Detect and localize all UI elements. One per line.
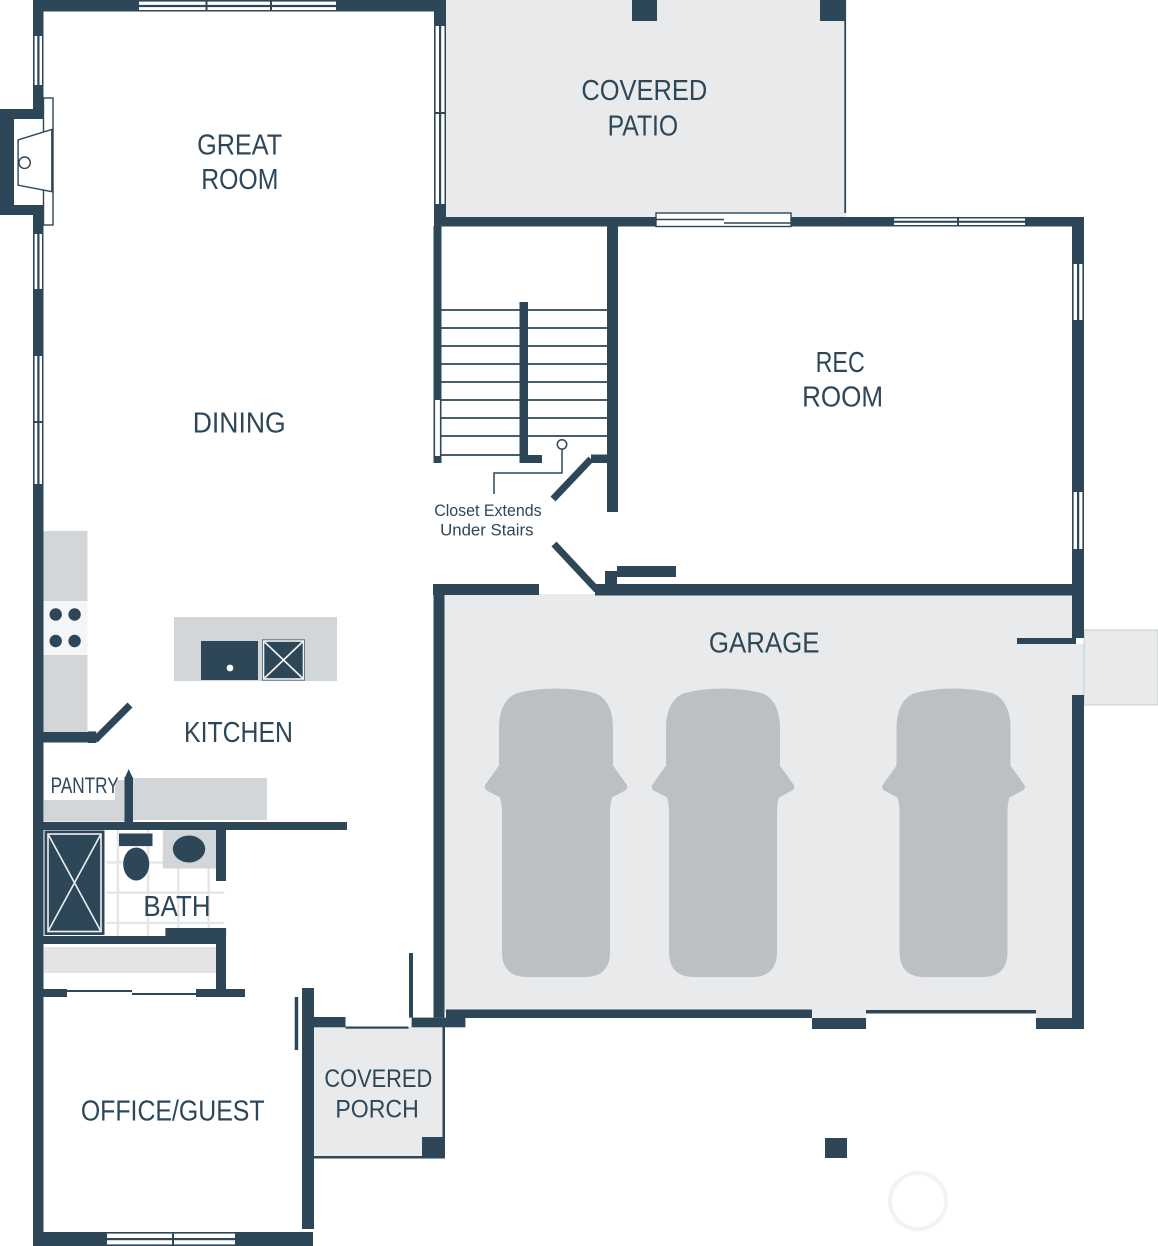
svg-text:ROOM: ROOM xyxy=(802,381,883,413)
svg-text:DINING: DINING xyxy=(193,408,286,440)
svg-text:GARAGE: GARAGE xyxy=(709,628,820,660)
svg-text:COVERED: COVERED xyxy=(324,1065,432,1093)
svg-text:KITCHEN: KITCHEN xyxy=(184,717,293,749)
svg-text:PATIO: PATIO xyxy=(608,110,679,142)
svg-text:BATH: BATH xyxy=(143,891,210,923)
svg-text:PANTRY: PANTRY xyxy=(51,773,119,798)
svg-text:COVERED: COVERED xyxy=(581,75,707,107)
svg-text:ROOM: ROOM xyxy=(201,164,278,196)
svg-text:Closet Extends: Closet Extends xyxy=(434,501,541,520)
svg-text:OFFICE/GUEST: OFFICE/GUEST xyxy=(81,1096,265,1128)
svg-text:Under Stairs: Under Stairs xyxy=(440,521,533,540)
svg-text:GREAT: GREAT xyxy=(197,130,282,162)
svg-text:REC: REC xyxy=(816,347,865,379)
svg-text:PORCH: PORCH xyxy=(335,1096,418,1124)
